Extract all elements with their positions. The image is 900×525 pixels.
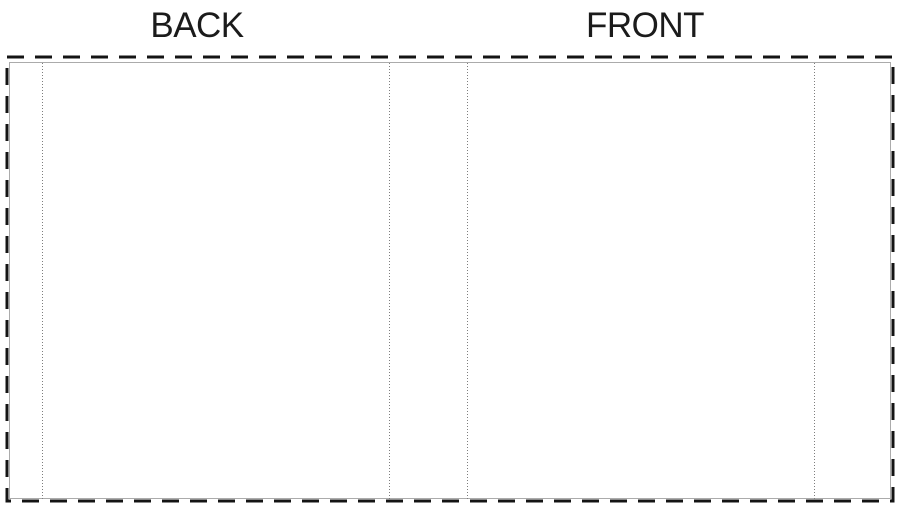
template-guides (0, 0, 900, 525)
bleed-border (7, 57, 893, 501)
trim-line (10, 63, 891, 499)
book-cover-template: BACK FRONT (0, 0, 900, 525)
